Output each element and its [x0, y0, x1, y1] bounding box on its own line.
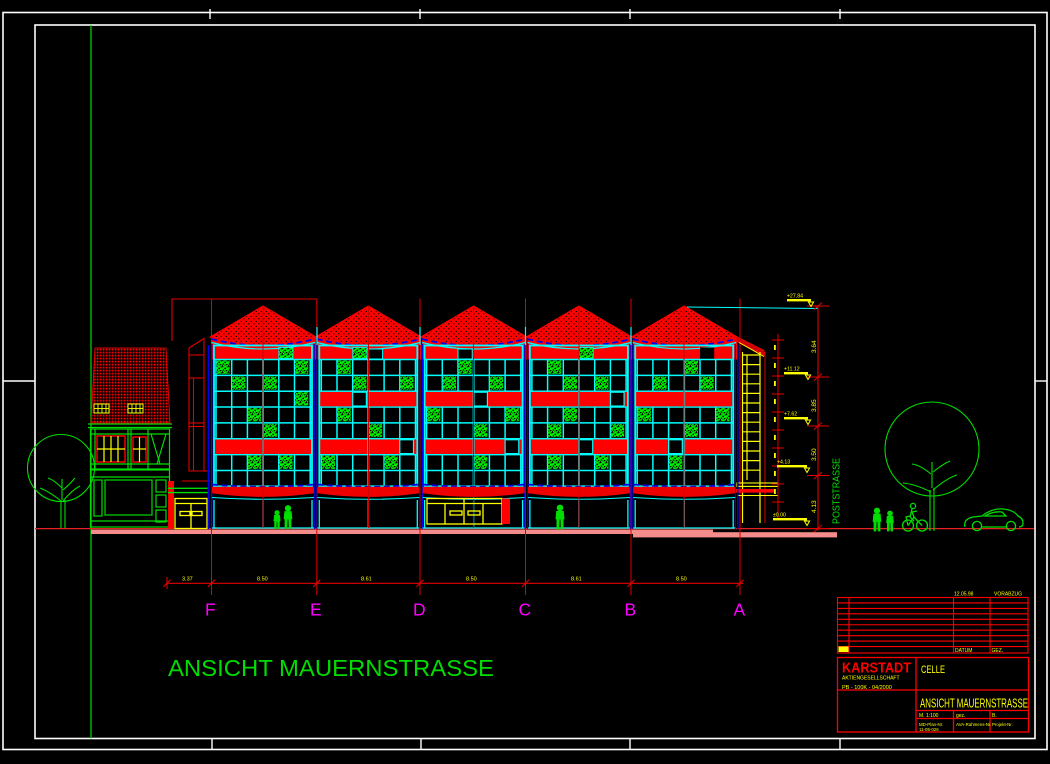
svg-text:8.61: 8.61	[571, 577, 582, 583]
svg-text:3.50: 3.50	[811, 448, 818, 461]
svg-text:3.85: 3.85	[811, 399, 818, 412]
svg-text:F: F	[205, 600, 216, 620]
svg-text:11-05-026: 11-05-026	[919, 727, 939, 732]
svg-text:DATUM: DATUM	[955, 648, 972, 654]
svg-text:CELLE: CELLE	[921, 664, 945, 676]
svg-text:PB - 100K - 04/2000: PB - 100K - 04/2000	[842, 685, 892, 691]
svg-text:M. 1:100: M. 1:100	[919, 713, 939, 719]
svg-text:+7.62: +7.62	[784, 412, 797, 418]
svg-text:3.64: 3.64	[811, 340, 818, 353]
svg-text:D: D	[413, 600, 426, 620]
svg-text:GEZ.: GEZ.	[992, 648, 1004, 654]
svg-text:ANSICHT MAUERNSTRASSE: ANSICHT MAUERNSTRASSE	[920, 697, 1028, 711]
svg-text:B.: B.	[992, 713, 997, 719]
svg-text:8.50: 8.50	[466, 577, 477, 583]
svg-text:12.05.98: 12.05.98	[954, 592, 974, 598]
svg-text:AKTIENGESELLSCHAFT: AKTIENGESELLSCHAFT	[842, 676, 900, 682]
svg-text:8.61: 8.61	[361, 577, 372, 583]
svg-text:KARSTADT: KARSTADT	[842, 661, 911, 677]
svg-text:+4.13: +4.13	[777, 460, 790, 466]
svg-text:VORABZUG: VORABZUG	[994, 592, 1022, 598]
svg-text:±0.00: ±0.00	[773, 513, 786, 519]
svg-text:4.13: 4.13	[811, 500, 818, 513]
svg-text:B: B	[625, 600, 637, 620]
svg-text:ANSICHT MAUERNSTRASSE: ANSICHT MAUERNSTRASSE	[168, 655, 494, 681]
svg-text:AVA-Rahmens-Nr.: AVA-Rahmens-Nr.	[956, 722, 991, 727]
svg-text:8.50: 8.50	[676, 577, 687, 583]
svg-text:E: E	[310, 600, 322, 620]
svg-text:Projekt-Nr.: Projekt-Nr.	[992, 722, 1013, 727]
svg-text:A: A	[734, 600, 746, 620]
svg-text:8.50: 8.50	[257, 577, 268, 583]
svg-text:+11.12: +11.12	[784, 367, 800, 373]
svg-text:C: C	[519, 600, 532, 620]
svg-text:3.37: 3.37	[182, 577, 193, 583]
svg-text:POSTSTRASSE: POSTSTRASSE	[832, 458, 843, 524]
svg-text:gez.: gez.	[956, 713, 965, 719]
svg-text:+27.84: +27.84	[787, 294, 803, 300]
